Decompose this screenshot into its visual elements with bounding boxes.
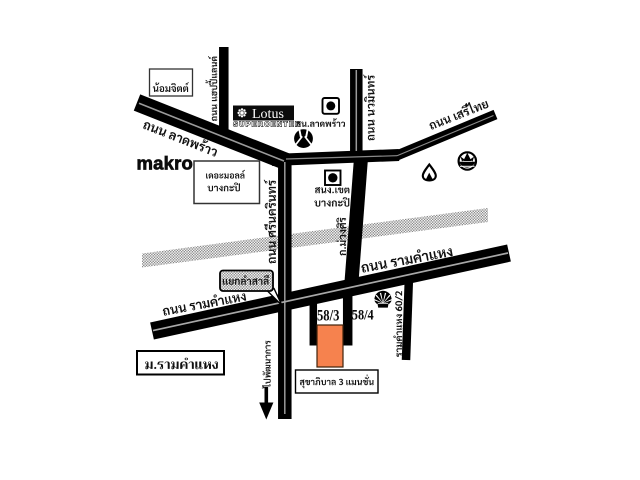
svg-text:58/3: 58/3: [317, 307, 339, 325]
svg-text:Lotus: Lotus: [252, 107, 284, 122]
svg-text:SUPERCENTER: SUPERCENTER: [233, 121, 301, 128]
svg-text:58/4: 58/4: [352, 306, 374, 322]
svg-text:makro: makro: [137, 152, 194, 173]
